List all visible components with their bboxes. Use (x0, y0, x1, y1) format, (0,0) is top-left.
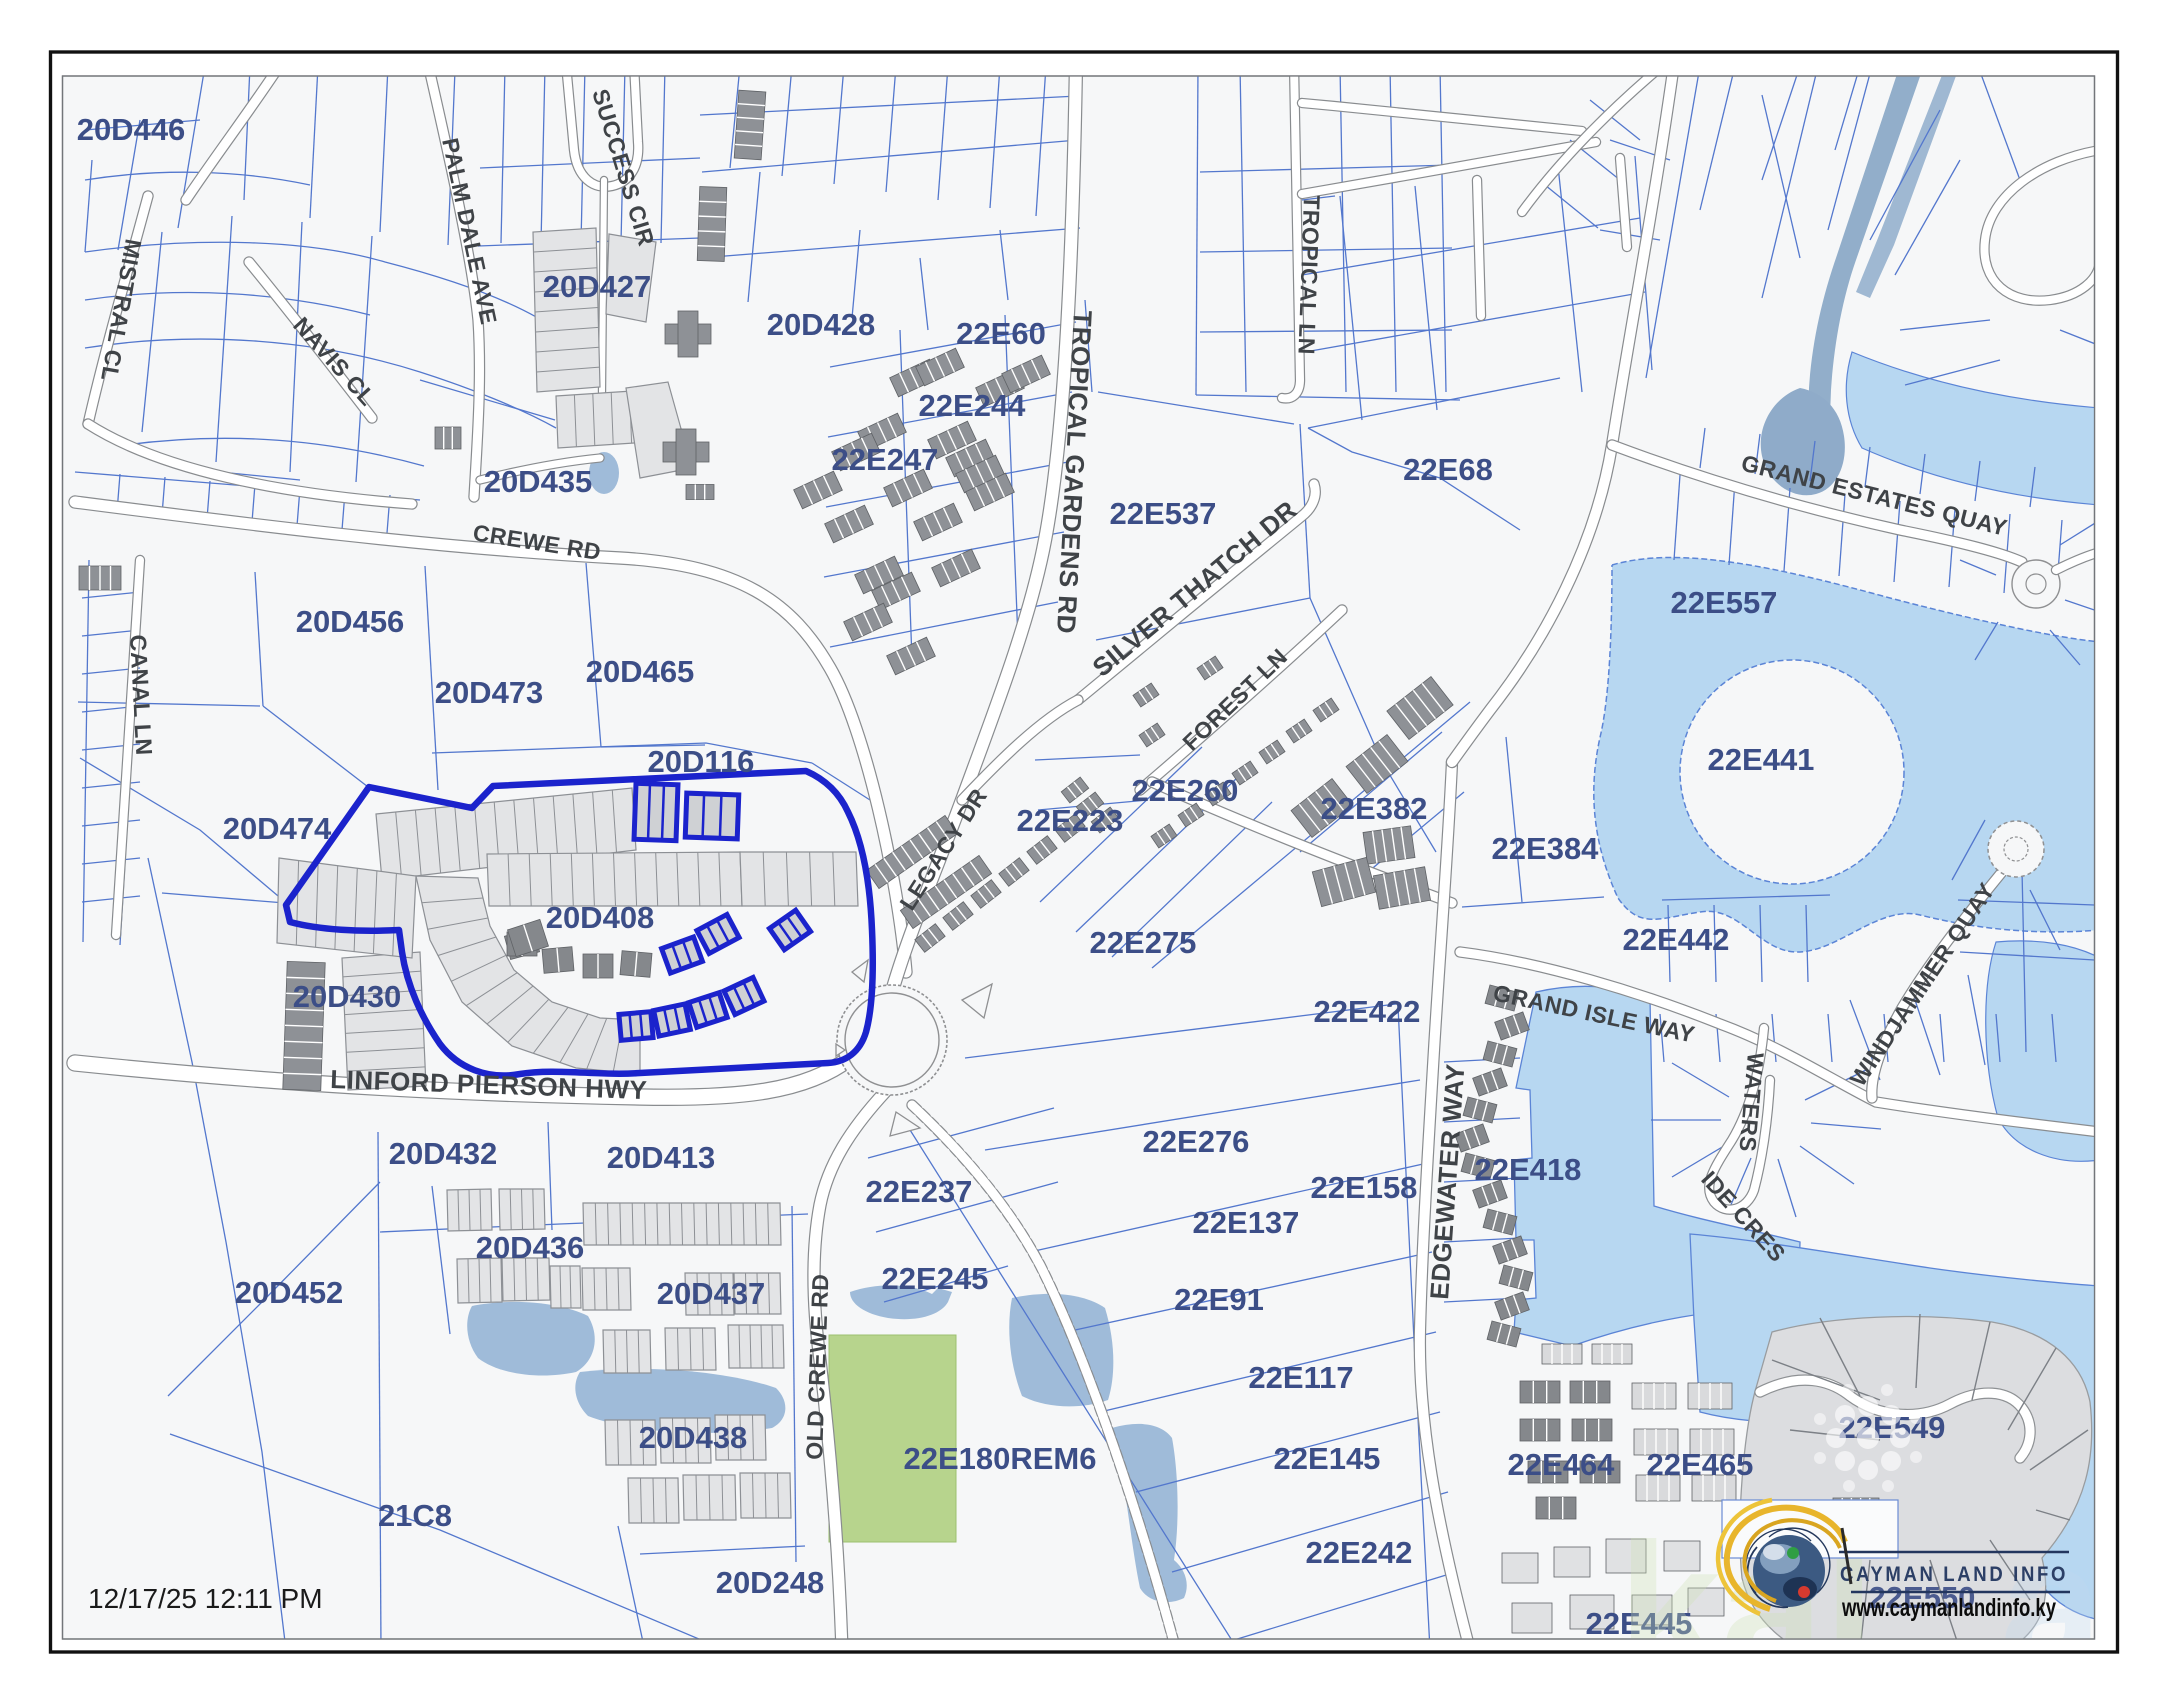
svg-text:22E244: 22E244 (919, 388, 1027, 423)
svg-text:22E422: 22E422 (1314, 994, 1421, 1029)
svg-text:22E223: 22E223 (1017, 803, 1124, 838)
svg-text:22E117: 22E117 (1248, 1360, 1353, 1395)
svg-text:22E418: 22E418 (1475, 1152, 1582, 1187)
svg-text:12/17/25 12:11 PM: 12/17/25 12:11 PM (88, 1583, 323, 1614)
svg-text:22E537: 22E537 (1110, 496, 1217, 531)
svg-text:22E382: 22E382 (1321, 791, 1428, 826)
svg-text:www.caymanlandinfo.ky: www.caymanlandinfo.ky (1841, 1594, 2056, 1622)
svg-text:20D116: 20D116 (648, 744, 755, 779)
svg-text:20D248: 20D248 (716, 1565, 825, 1600)
svg-text:20D452: 20D452 (235, 1275, 344, 1310)
svg-text:20D436: 20D436 (476, 1230, 585, 1265)
svg-text:TROPICAL LN: TROPICAL LN (1293, 195, 1325, 355)
svg-text:20D413: 20D413 (607, 1140, 716, 1175)
svg-text:22E260: 22E260 (1132, 773, 1239, 808)
svg-text:22E276: 22E276 (1143, 1124, 1250, 1159)
svg-text:22E442: 22E442 (1623, 922, 1730, 957)
svg-text:22E180REM6: 22E180REM6 (903, 1441, 1096, 1476)
svg-text:22E158: 22E158 (1311, 1170, 1418, 1205)
svg-text:20D427: 20D427 (543, 269, 652, 304)
svg-text:22E242: 22E242 (1306, 1535, 1413, 1570)
svg-text:22E557: 22E557 (1671, 585, 1778, 620)
svg-text:20D474: 20D474 (223, 811, 332, 846)
svg-text:20D438: 20D438 (639, 1420, 748, 1455)
svg-text:CAYMAN LAND INFO: CAYMAN LAND INFO (1840, 1563, 2068, 1586)
svg-text:20D456: 20D456 (296, 604, 405, 639)
svg-text:22E465: 22E465 (1647, 1447, 1754, 1482)
svg-text:20D408: 20D408 (546, 900, 655, 935)
svg-text:22E237: 22E237 (866, 1174, 973, 1209)
svg-text:20D437: 20D437 (657, 1276, 766, 1311)
svg-text:22E275: 22E275 (1090, 925, 1197, 960)
svg-text:22E91: 22E91 (1174, 1282, 1264, 1317)
svg-text:20D435: 20D435 (484, 464, 593, 499)
svg-text:20D428: 20D428 (767, 307, 876, 342)
svg-text:20D473: 20D473 (435, 675, 544, 710)
svg-text:22E441: 22E441 (1708, 742, 1815, 777)
svg-text:20D465: 20D465 (586, 654, 695, 689)
svg-text:22E137: 22E137 (1193, 1205, 1300, 1240)
svg-text:22E247: 22E247 (832, 442, 939, 477)
svg-text:21C8: 21C8 (378, 1498, 452, 1533)
svg-text:22E68: 22E68 (1403, 452, 1493, 487)
svg-text:22E384: 22E384 (1492, 831, 1600, 866)
svg-text:20D432: 20D432 (389, 1136, 498, 1171)
svg-text:22E464: 22E464 (1508, 1447, 1616, 1482)
svg-text:22E245: 22E245 (882, 1261, 989, 1296)
svg-text:22E60: 22E60 (956, 316, 1046, 351)
svg-text:22E145: 22E145 (1274, 1441, 1381, 1476)
svg-text:20D446: 20D446 (77, 112, 186, 147)
svg-text:20D430: 20D430 (293, 979, 402, 1014)
